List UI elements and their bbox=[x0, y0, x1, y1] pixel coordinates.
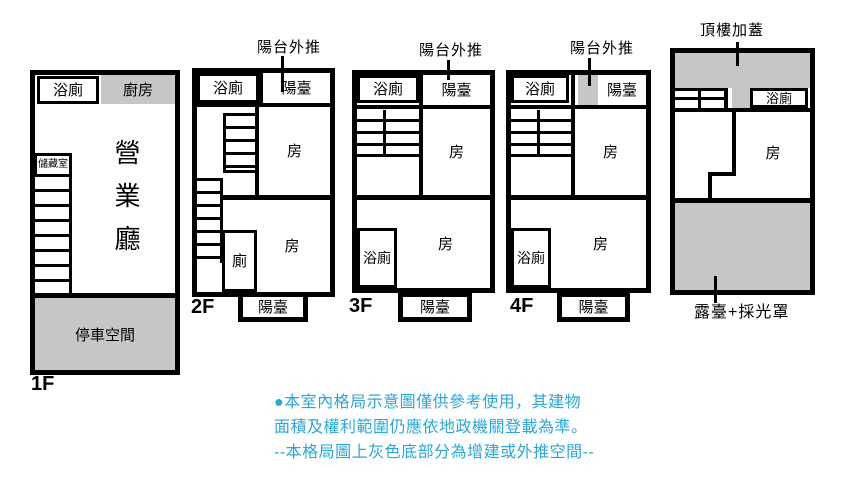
disclaimer-note: ●本室內格局示意圖僅供參考使用，其建物 面積及權利範圍仍應依地政機關登載為準。 … bbox=[274, 390, 634, 465]
room-3f-lower: 房 bbox=[401, 200, 490, 288]
room-4f-upper: 房 bbox=[575, 109, 646, 195]
room-3f-bathroom-top: 浴廁 bbox=[357, 75, 419, 103]
stairs-2f-upper bbox=[223, 113, 258, 173]
annotation-2f-balcony-pushout: 陽台外推 bbox=[257, 40, 321, 55]
annotation-roof-arrow-line bbox=[736, 42, 739, 66]
floor-label-2f: 2F bbox=[191, 297, 214, 317]
annotation-4f-balcony-pushout: 陽台外推 bbox=[570, 41, 634, 56]
stairs-3f-left bbox=[357, 110, 383, 154]
stairs-2f-lower bbox=[197, 178, 223, 263]
room-3f-bathroom-lower: 浴廁 bbox=[357, 228, 397, 288]
floorplan-1f: 浴廁 廚房 營業廳 儲藏室 停車空間 bbox=[30, 70, 180, 375]
room-1f-hall: 營業廳 bbox=[113, 139, 139, 268]
annotation-roof-addition: 頂樓加蓋 bbox=[700, 23, 764, 38]
annotation-4f-arrow-line bbox=[588, 58, 591, 86]
room-4f-lower: 房 bbox=[555, 200, 646, 288]
disclaimer-line-2: 面積及權利範圍仍應依地政機關登載為準。 bbox=[274, 415, 634, 440]
room-1f-kitchen: 廚房 bbox=[101, 75, 175, 104]
room-roof-room: 房 bbox=[736, 108, 810, 198]
room-4f-bathroom-top: 浴廁 bbox=[511, 75, 569, 103]
wall bbox=[357, 154, 419, 157]
annotation-roof-terrace: 露臺+採光罩 bbox=[694, 305, 789, 321]
annotation-3f-arrow-line bbox=[447, 60, 450, 80]
room-4f-balcony-top: 陽臺 bbox=[598, 75, 646, 105]
floor-plan-canvas: 浴廁 廚房 營業廳 儲藏室 停車空間 1F 浴廁 陽臺 房 廁 房 陽臺 2F … bbox=[0, 0, 848, 500]
stairs-roof bbox=[675, 88, 728, 108]
floorplan-roof: 浴廁 房 bbox=[670, 48, 815, 295]
annotation-3f-balcony-pushout: 陽台外推 bbox=[419, 43, 483, 58]
wall bbox=[571, 75, 575, 105]
stairs-4f-right bbox=[540, 110, 571, 154]
room-2f-toilet: 廁 bbox=[222, 230, 257, 292]
highlight-roof-terrace-area bbox=[675, 203, 810, 290]
stairs-4f-left bbox=[511, 110, 537, 154]
room-4f-balcony-bottom: 陽臺 bbox=[557, 292, 630, 322]
annotation-terrace-arrow-line bbox=[714, 276, 717, 303]
floorplan-4f: 浴廁 陽臺 房 浴廁 房 bbox=[506, 70, 651, 293]
floor-label-4f: 4F bbox=[510, 296, 533, 316]
stairs-1f bbox=[35, 177, 72, 293]
room-3f-balcony-top: 陽臺 bbox=[423, 75, 490, 105]
wall bbox=[708, 172, 736, 176]
floorplan-3f: 浴廁 陽臺 房 浴廁 房 bbox=[352, 70, 495, 293]
room-2f-upper: 房 bbox=[259, 107, 330, 195]
disclaimer-line-3: --本格局圖上灰色底部分為增建或外推空間-- bbox=[274, 440, 634, 465]
highlight-roof-addition-area bbox=[675, 53, 810, 88]
room-2f-balcony-top: 陽臺 bbox=[263, 73, 330, 103]
room-1f-storage: 儲藏室 bbox=[34, 153, 72, 177]
room-2f-bathroom: 浴廁 bbox=[197, 73, 259, 103]
room-roof-bathroom: 浴廁 bbox=[750, 88, 808, 108]
room-4f-bathroom-lower: 浴廁 bbox=[511, 228, 551, 288]
room-1f-parking: 停車空間 bbox=[35, 293, 175, 370]
floor-label-3f: 3F bbox=[349, 296, 372, 316]
floor-label-1f: 1F bbox=[31, 374, 54, 394]
room-2f-lower: 房 bbox=[254, 200, 330, 292]
room-1f-bathroom: 浴廁 bbox=[37, 76, 99, 104]
annotation-2f-arrow-line bbox=[281, 56, 284, 92]
wall bbox=[698, 91, 701, 108]
room-3f-upper: 房 bbox=[423, 109, 490, 195]
disclaimer-line-1: ●本室內格局示意圖僅供參考使用，其建物 bbox=[274, 390, 634, 415]
room-3f-balcony-bottom: 陽臺 bbox=[398, 292, 472, 322]
room-2f-balcony-bottom: 陽臺 bbox=[238, 292, 308, 322]
wall bbox=[708, 172, 712, 198]
wall bbox=[511, 154, 571, 157]
floorplan-2f: 浴廁 陽臺 房 廁 房 bbox=[192, 68, 335, 297]
stairs-3f-right bbox=[386, 110, 419, 154]
